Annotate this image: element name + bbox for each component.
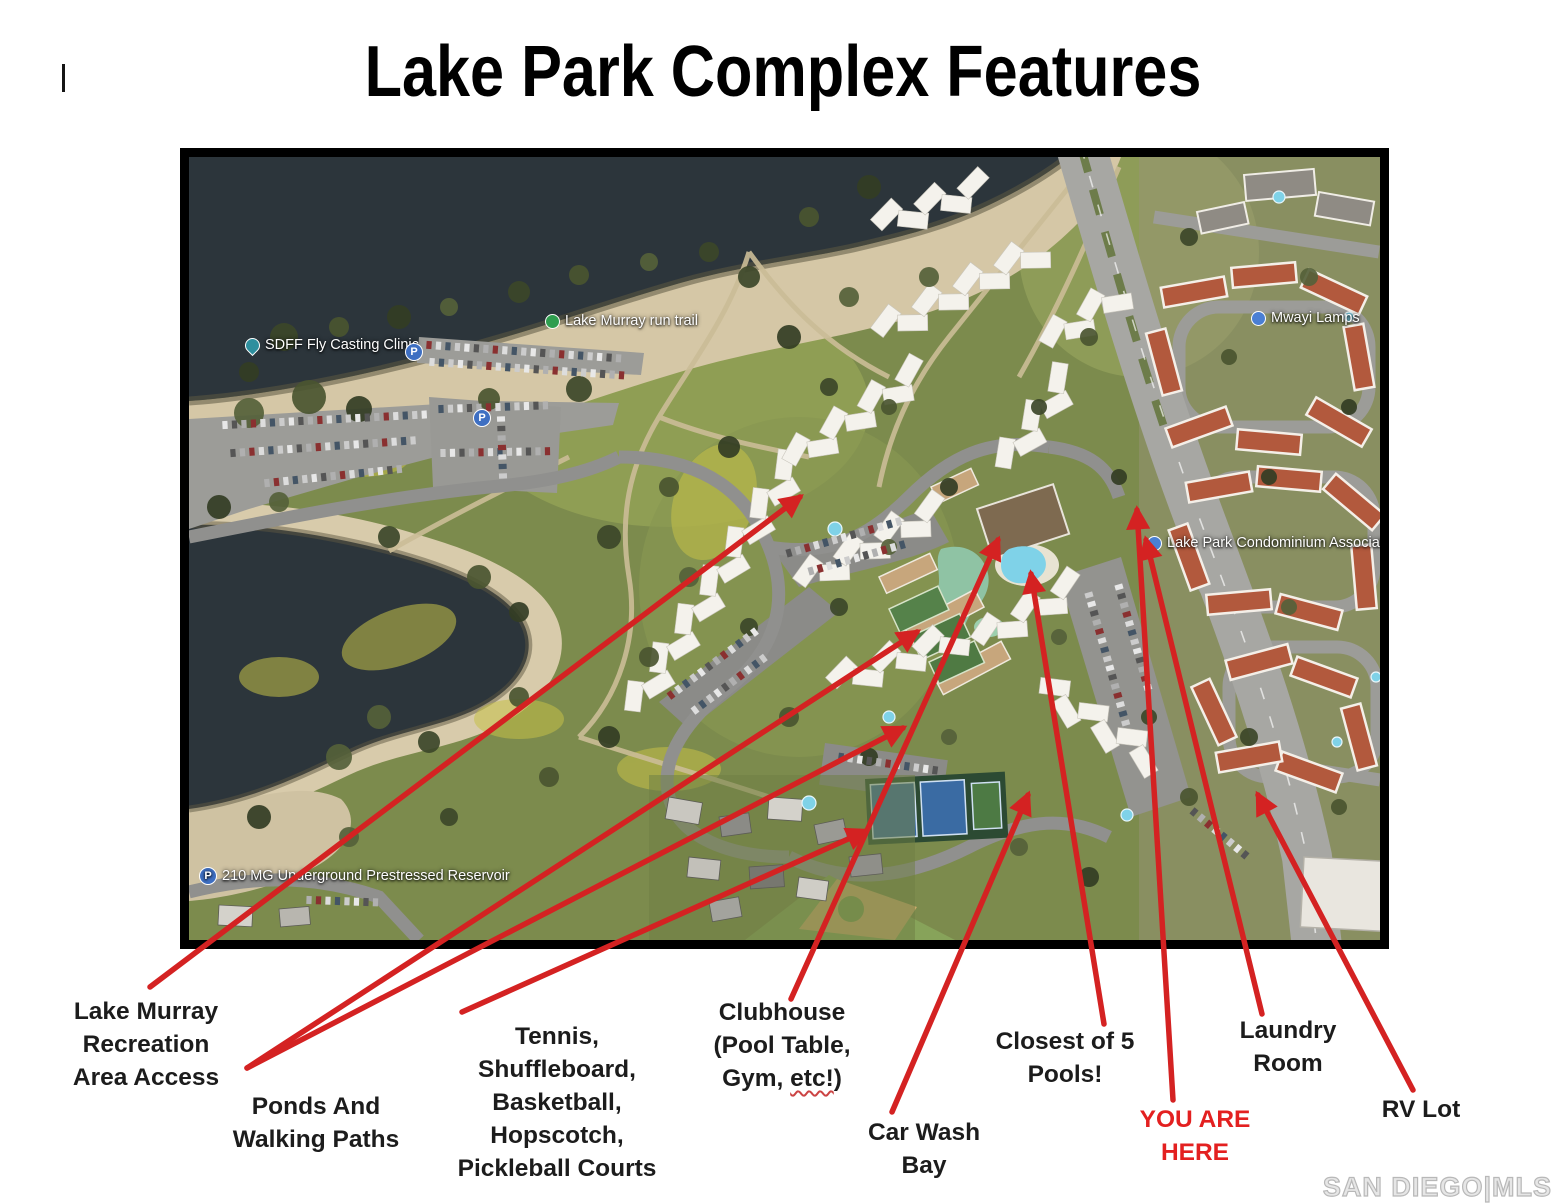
annotation-car-wash-bay: Car Wash Bay (868, 1116, 980, 1182)
aerial-map: SDFF Fly Casting Clinic Lake Murray run … (180, 148, 1389, 949)
annotation-ponds-walking-paths: Ponds And Walking Paths (233, 1090, 400, 1156)
stray-mark (62, 64, 65, 92)
map-pin-icon (1147, 536, 1162, 551)
map-pin-icon (242, 334, 263, 355)
annotation-you-are-here: YOU ARE HERE (1140, 1103, 1251, 1169)
shop-pin-icon (1251, 311, 1266, 326)
parking-pin-icon: P (199, 867, 217, 885)
poi-mwayi-lamps: Mwayi Lamps (1251, 310, 1360, 326)
annotation-laundry-room: Laundry Room (1240, 1014, 1337, 1080)
page: Lake Park Complex Features (0, 0, 1566, 1204)
parking-pin-icon: P (405, 343, 423, 361)
parking-pin-icon: P (473, 409, 491, 427)
tree-pin-icon (545, 314, 560, 329)
poi-reservoir: P 210 MG Underground Prestressed Reservo… (199, 867, 510, 885)
annotation-lake-murray-access: Lake Murray Recreation Area Access (73, 995, 219, 1094)
poi-label: Mwayi Lamps (1271, 310, 1360, 326)
poi-run-trail: Lake Murray run trail (545, 313, 698, 329)
poi-label: Lake Murray run trail (565, 313, 698, 329)
mls-watermark: SAN DIEGO|MLS (1323, 1172, 1552, 1203)
poi-label: Lake Park Condominium Associates (1167, 535, 1389, 551)
poi-condo-association: Lake Park Condominium Associates (1147, 535, 1389, 551)
annotation-closest-pools: Closest of 5 Pools! (996, 1025, 1135, 1091)
poi-fly-casting-clinic: SDFF Fly Casting Clinic (245, 337, 419, 353)
annotation-clubhouse: Clubhouse (Pool Table, Gym, etc!) (713, 996, 850, 1095)
poi-label: SDFF Fly Casting Clinic (265, 337, 419, 353)
annotation-tennis-courts: Tennis, Shuffleboard, Basketball, Hopsco… (458, 1020, 657, 1185)
poi-label: 210 MG Underground Prestressed Reservoir (222, 868, 510, 884)
page-title: Lake Park Complex Features (117, 36, 1448, 108)
annotation-rv-lot: RV Lot (1382, 1093, 1461, 1126)
